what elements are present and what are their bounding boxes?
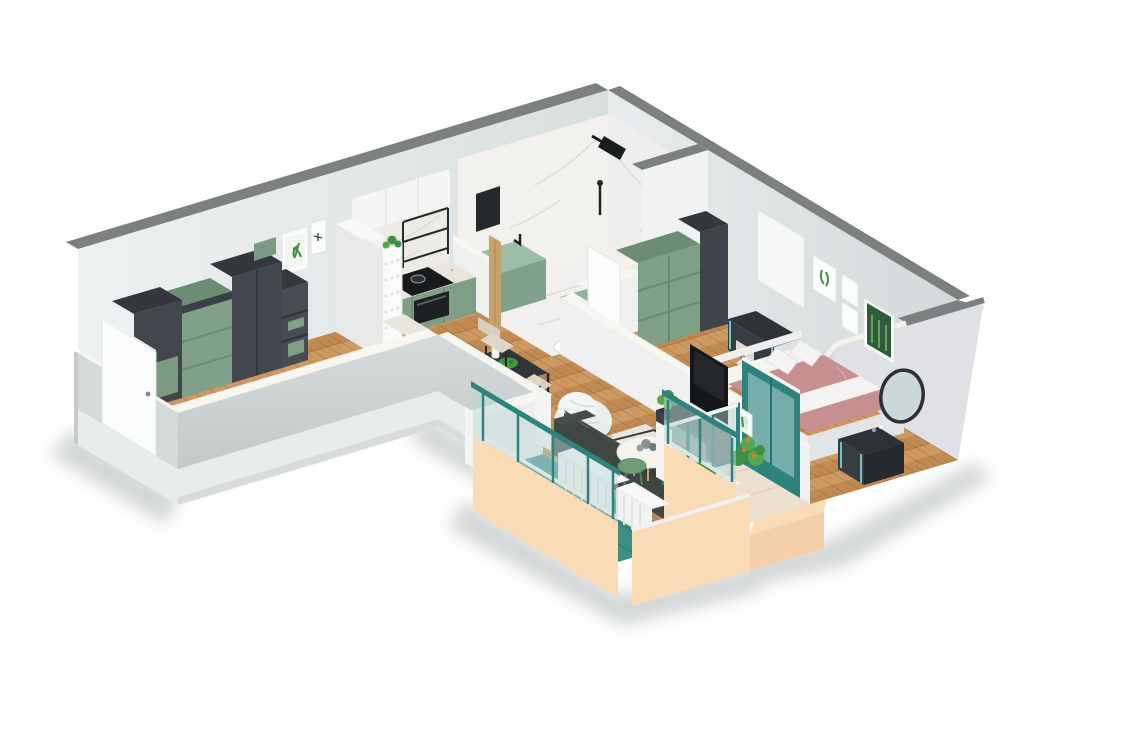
dark-closet-front [700, 224, 728, 332]
apartment-isometric-render [0, 0, 1140, 753]
fridge-side [336, 224, 366, 350]
floorplan-stage [0, 0, 1140, 753]
print [285, 232, 305, 270]
leaf-art [742, 417, 743, 427]
hand-shower-head [597, 180, 603, 186]
door-handle [146, 392, 151, 397]
pegboard-side [364, 238, 382, 361]
framed-botanical-print [282, 226, 308, 276]
side-table-top [618, 459, 646, 474]
unit-front [182, 299, 232, 398]
wall-stub [800, 442, 810, 504]
corner-sliver [74, 351, 78, 445]
pot [411, 275, 425, 283]
perfume-bottle [879, 425, 883, 429]
framed-dragonfly-print [311, 219, 326, 255]
perfume-bottle [872, 428, 876, 432]
bathroom-wall-mirror [476, 186, 500, 232]
fruit [509, 360, 513, 364]
